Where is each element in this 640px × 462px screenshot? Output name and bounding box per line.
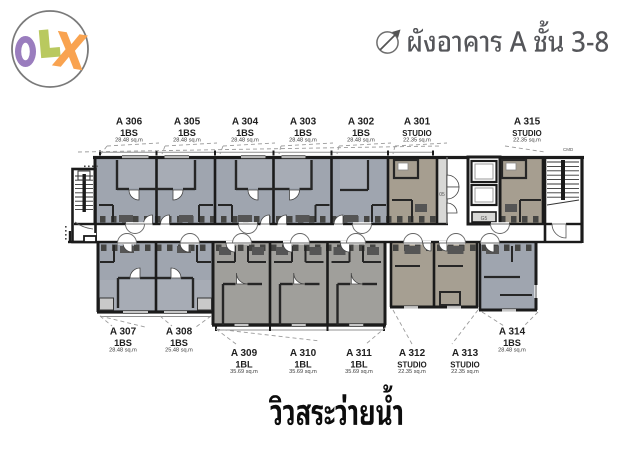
svg-text:28.48 sq.m: 28.48 sq.m	[498, 348, 526, 354]
svg-text:1BL: 1BL	[350, 360, 368, 370]
svg-text:28.48 sq.m: 28.48 sq.m	[231, 138, 259, 144]
svg-text:A 314: A 314	[499, 327, 526, 338]
svg-text:1BS: 1BS	[114, 338, 132, 348]
svg-text:28.48 sq.m: 28.48 sq.m	[289, 138, 317, 144]
svg-text:28.48 sq.m: 28.48 sq.m	[109, 348, 137, 354]
svg-text:28.48 sq.m: 28.48 sq.m	[173, 138, 201, 144]
svg-text:1BL: 1BL	[235, 360, 253, 370]
svg-text:22.35 sq.m: 22.35 sq.m	[403, 138, 431, 144]
svg-text:A 313: A 313	[452, 348, 479, 359]
svg-text:25.48 sq.m: 25.48 sq.m	[165, 348, 193, 354]
svg-text:1BS: 1BS	[236, 128, 254, 138]
svg-text:A 307: A 307	[110, 327, 137, 338]
svg-text:35.69 sq.m: 35.69 sq.m	[230, 369, 258, 375]
svg-text:G5: G5	[481, 216, 488, 222]
svg-text:1BL: 1BL	[294, 360, 312, 370]
svg-text:A 310: A 310	[290, 348, 317, 359]
svg-text:CMD: CMD	[563, 147, 574, 152]
svg-text:A 305: A 305	[174, 117, 201, 128]
svg-text:1BS: 1BS	[120, 128, 138, 138]
svg-text:1BS: 1BS	[352, 128, 370, 138]
svg-text:A 306: A 306	[116, 117, 143, 128]
svg-text:1BS: 1BS	[170, 338, 188, 348]
svg-text:A 311: A 311	[346, 348, 372, 359]
svg-text:22.35 sq.m: 22.35 sq.m	[398, 369, 426, 375]
svg-text:A 304: A 304	[232, 117, 259, 128]
svg-text:28.48 sq.m: 28.48 sq.m	[115, 138, 143, 144]
svg-text:1BS: 1BS	[294, 128, 312, 138]
svg-text:1BS: 1BS	[178, 128, 196, 138]
svg-text:1BS: 1BS	[503, 338, 521, 348]
svg-text:A 303: A 303	[290, 117, 317, 128]
svg-text:A 312: A 312	[399, 348, 426, 359]
svg-text:A 309: A 309	[231, 348, 258, 359]
svg-text:35.69 sq.m: 35.69 sq.m	[289, 369, 317, 375]
svg-text:A 302: A 302	[348, 117, 375, 128]
svg-text:35.69 sq.m: 35.69 sq.m	[345, 369, 373, 375]
svg-text:28.48 sq.m: 28.48 sq.m	[347, 138, 375, 144]
svg-text:05: 05	[439, 192, 445, 198]
svg-text:A 301: A 301	[404, 117, 431, 128]
svg-text:22.35 sq.m: 22.35 sq.m	[451, 369, 479, 375]
svg-text:A 315: A 315	[514, 117, 541, 128]
svg-text:22.35 sq.m: 22.35 sq.m	[513, 138, 541, 144]
svg-text:A 308: A 308	[166, 327, 193, 338]
